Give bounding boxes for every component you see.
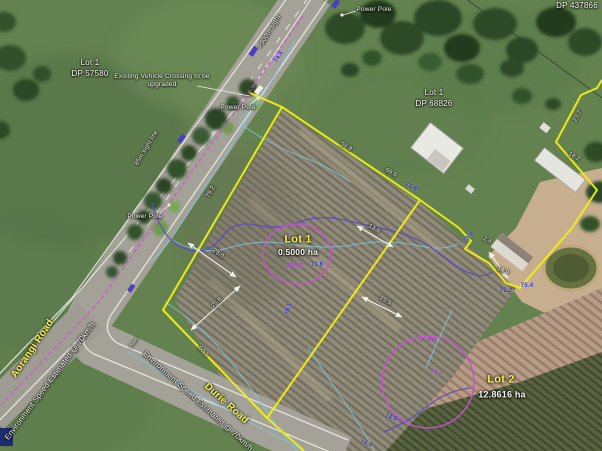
- contour-label-71-6: 71.6: [311, 262, 323, 268]
- note-crossing-line2: upgraded: [147, 82, 176, 89]
- label-lot2-area: 12.8616 ha: [478, 391, 526, 400]
- label-dp437866: DP 437866: [556, 2, 598, 10]
- contour-label-75-2: 75.2: [500, 288, 512, 294]
- label-lot1-dp57580-name: Lot 1: [81, 59, 100, 67]
- label-lot2-title: Lot 2: [487, 375, 514, 386]
- label-power-pole-mid: Power Pole: [220, 105, 255, 112]
- label-lot1-dp68826-dp: DP 68826: [415, 100, 452, 108]
- label-lot1-area: 0.5000 ha: [278, 248, 318, 257]
- pond: [544, 246, 598, 290]
- contour-label-75-4: 75.4: [521, 283, 533, 289]
- label-power-pole-top: Power Pole: [356, 7, 391, 14]
- note-crossing-line1: Existing Vehicle Crossing to be: [114, 74, 209, 81]
- label-lot1-dp68826-name: Lot 1: [425, 89, 444, 97]
- label-lot1-circle-diameter: 20mØ: [286, 263, 303, 269]
- label-power-pole-left: Power Pole: [127, 214, 162, 221]
- label-lot1-title: Lot 1: [284, 235, 311, 246]
- aerial-site-plan: Lot 1 DP 57580 Lot 1 DP 68826 DP 437866 …: [0, 0, 602, 451]
- label-lot2-circle-diameter: 20mØ: [419, 338, 436, 344]
- label-lot1-dp57580-dp: DP 57580: [71, 70, 108, 78]
